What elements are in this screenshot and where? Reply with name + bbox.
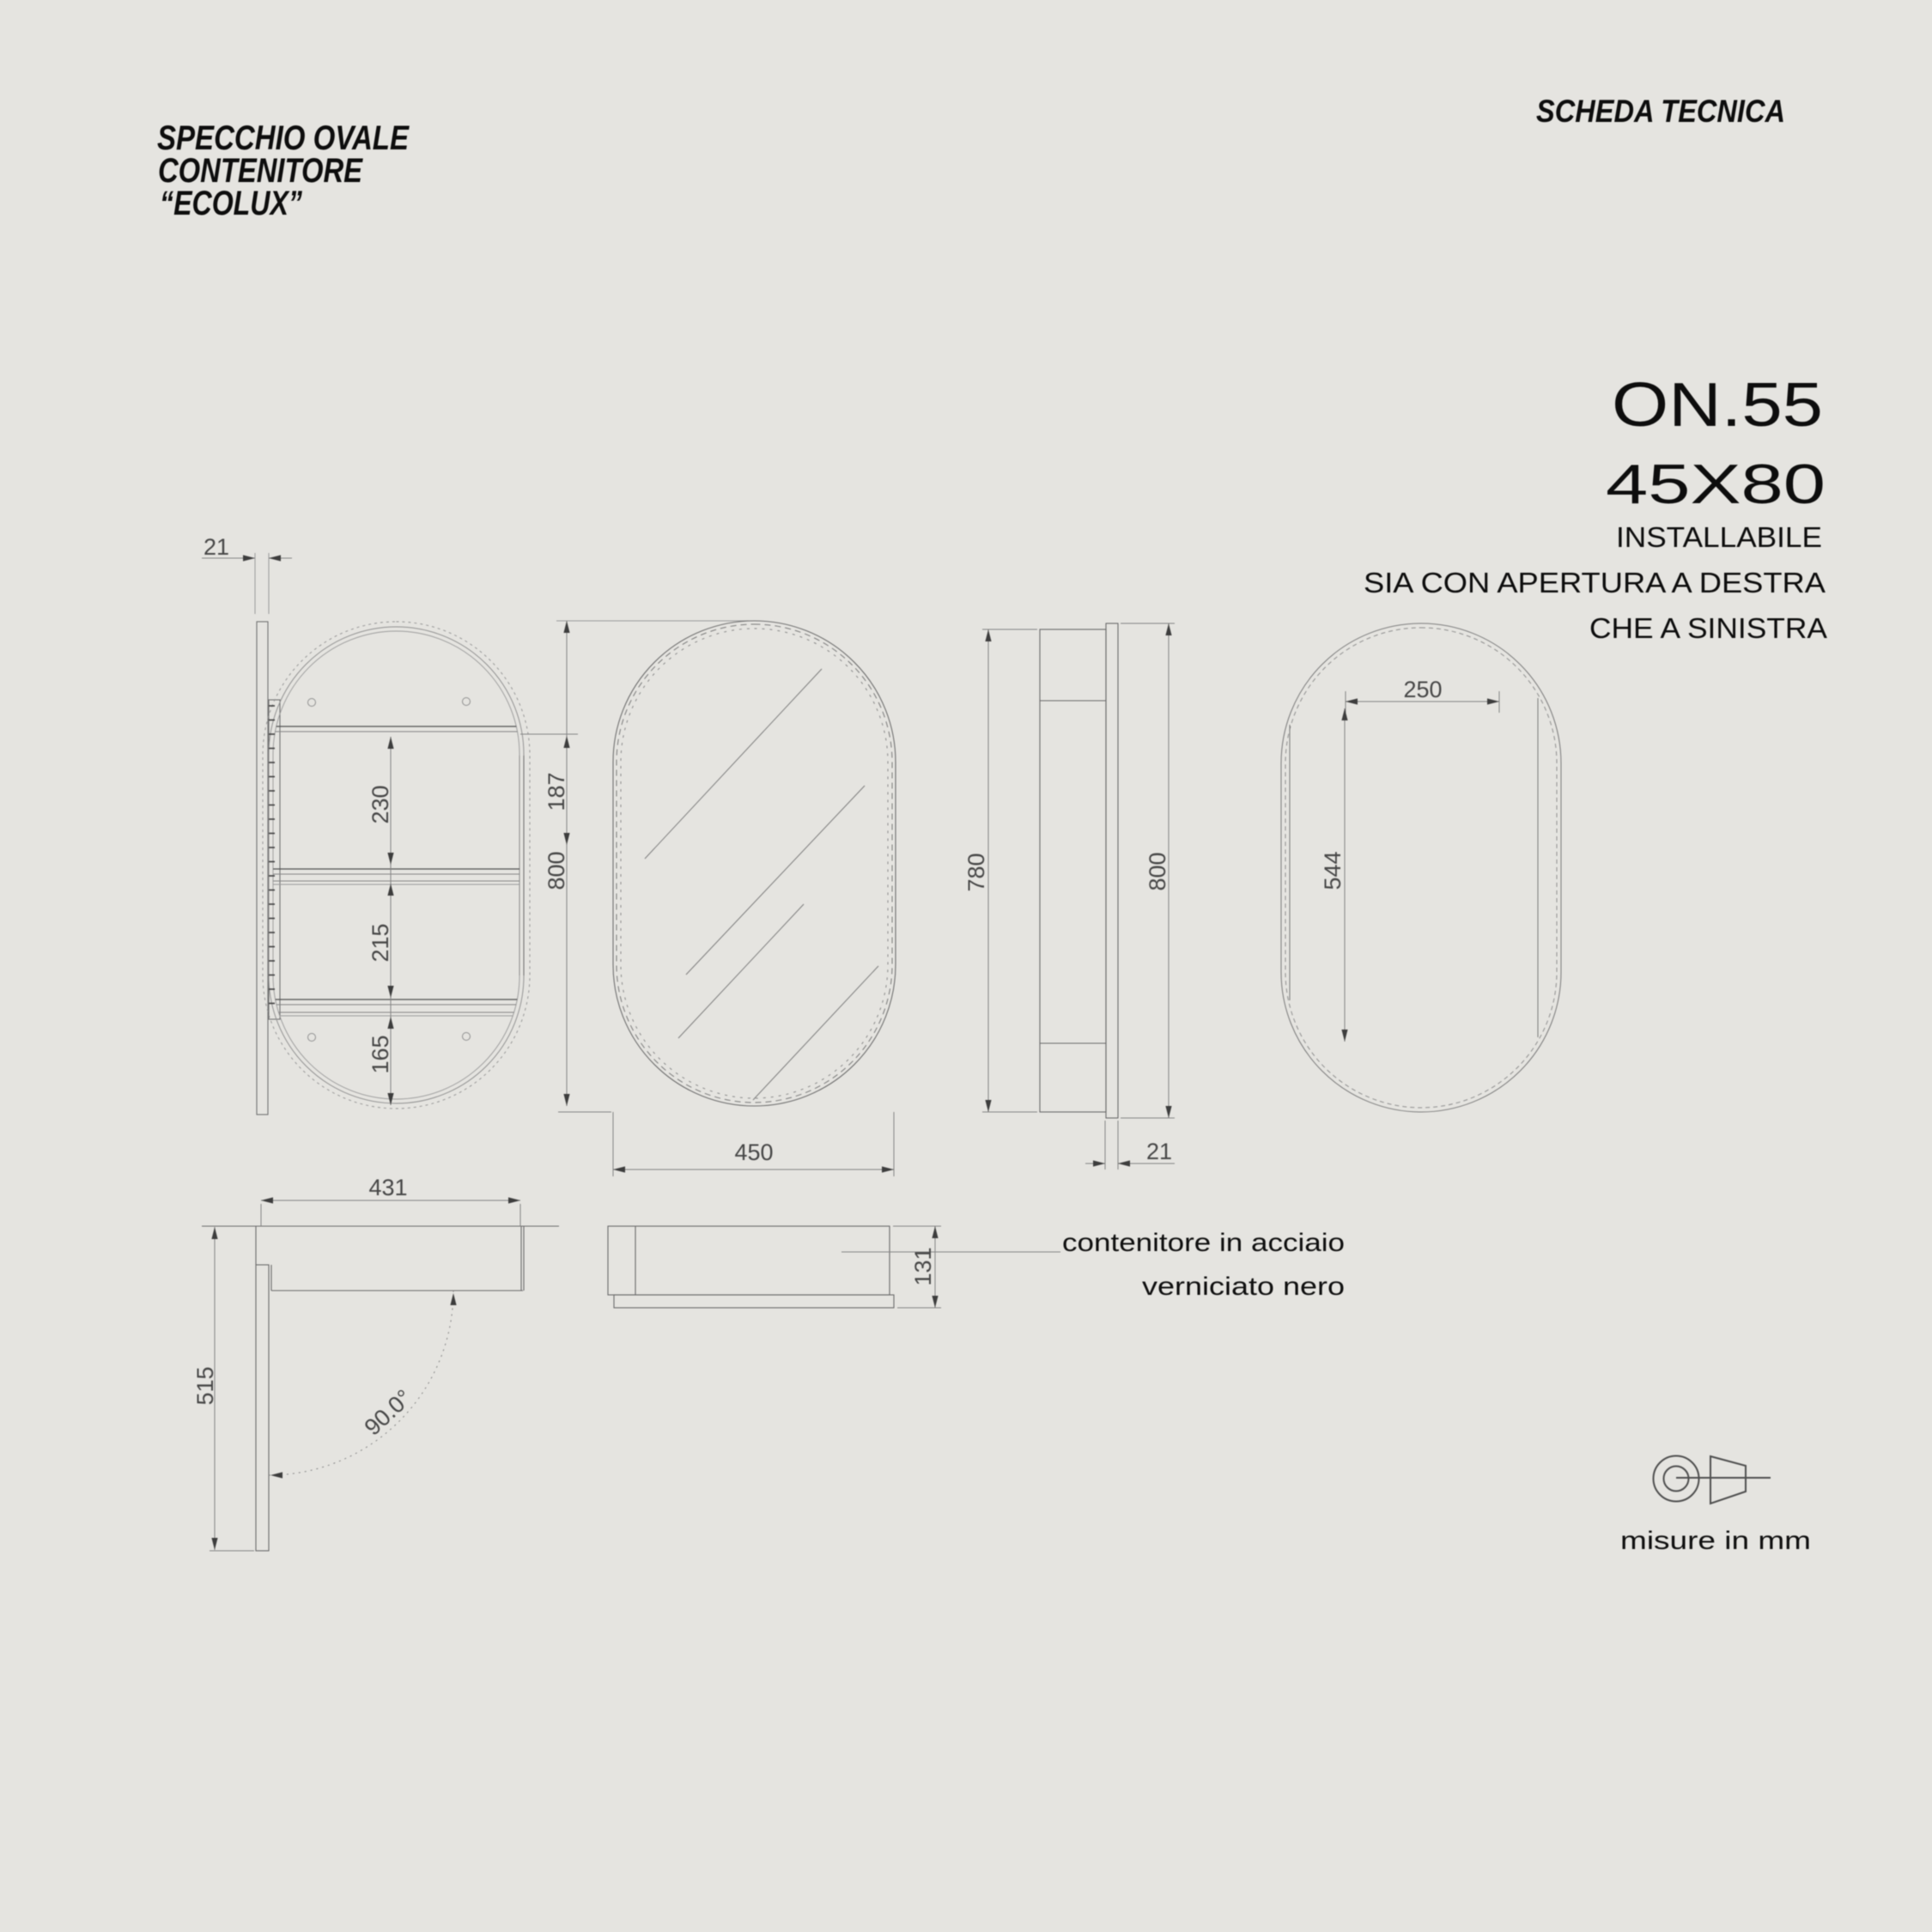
svg-text:CHE A SINISTRA: CHE A SINISTRA	[1589, 612, 1827, 644]
svg-text:165: 165	[368, 1035, 393, 1073]
svg-text:SIA CON APERTURA A DESTRA: SIA CON APERTURA A DESTRA	[1364, 567, 1826, 598]
svg-text:21: 21	[204, 534, 229, 560]
svg-text:187: 187	[544, 772, 569, 811]
svg-text:544: 544	[1320, 851, 1346, 890]
svg-text:250: 250	[1403, 677, 1442, 702]
svg-text:800: 800	[544, 851, 569, 890]
svg-text:450: 450	[734, 1139, 773, 1165]
svg-text:misure in mm: misure in mm	[1620, 1527, 1811, 1555]
svg-text:45X80: 45X80	[1606, 453, 1826, 515]
svg-text:780: 780	[963, 853, 989, 891]
svg-text:SCHEDA TECNICA: SCHEDA TECNICA	[1536, 94, 1785, 129]
svg-text:ON.55: ON.55	[1612, 371, 1823, 440]
svg-text:230: 230	[368, 785, 393, 823]
svg-text:“ECOLUX”: “ECOLUX”	[160, 185, 302, 222]
svg-text:verniciato nero: verniciato nero	[1142, 1273, 1345, 1301]
svg-text:131: 131	[910, 1247, 936, 1285]
svg-text:contenitore in acciaio: contenitore in acciaio	[1062, 1229, 1345, 1257]
svg-text:431: 431	[368, 1175, 407, 1200]
svg-text:515: 515	[192, 1366, 218, 1405]
svg-text:800: 800	[1145, 852, 1170, 890]
svg-text:INSTALLABILE: INSTALLABILE	[1616, 521, 1822, 553]
svg-text:215: 215	[368, 923, 393, 962]
svg-text:21: 21	[1146, 1139, 1172, 1164]
